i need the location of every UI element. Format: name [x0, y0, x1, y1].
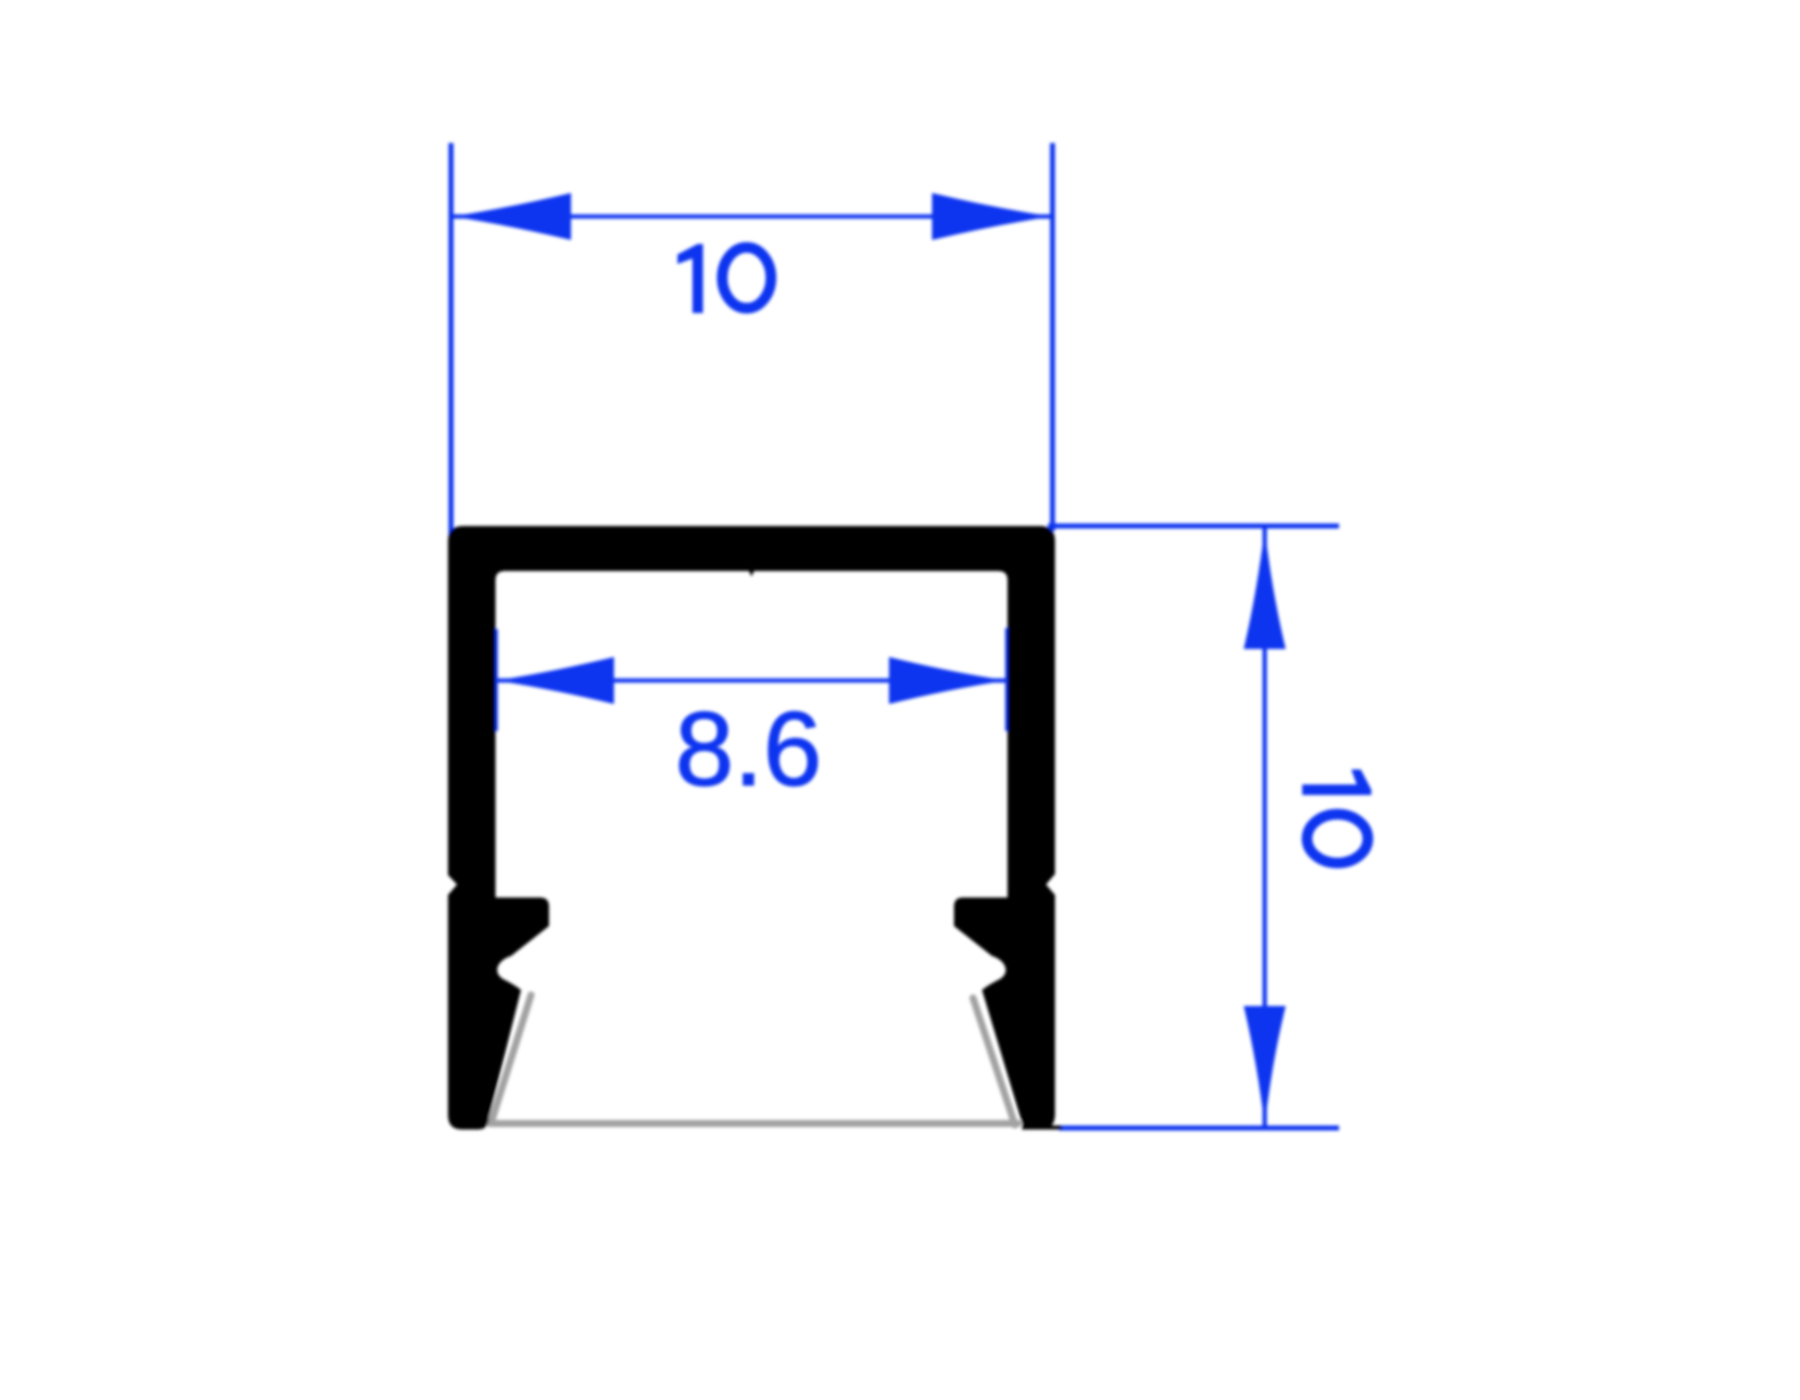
- svg-text:8.6: 8.6: [675, 691, 822, 808]
